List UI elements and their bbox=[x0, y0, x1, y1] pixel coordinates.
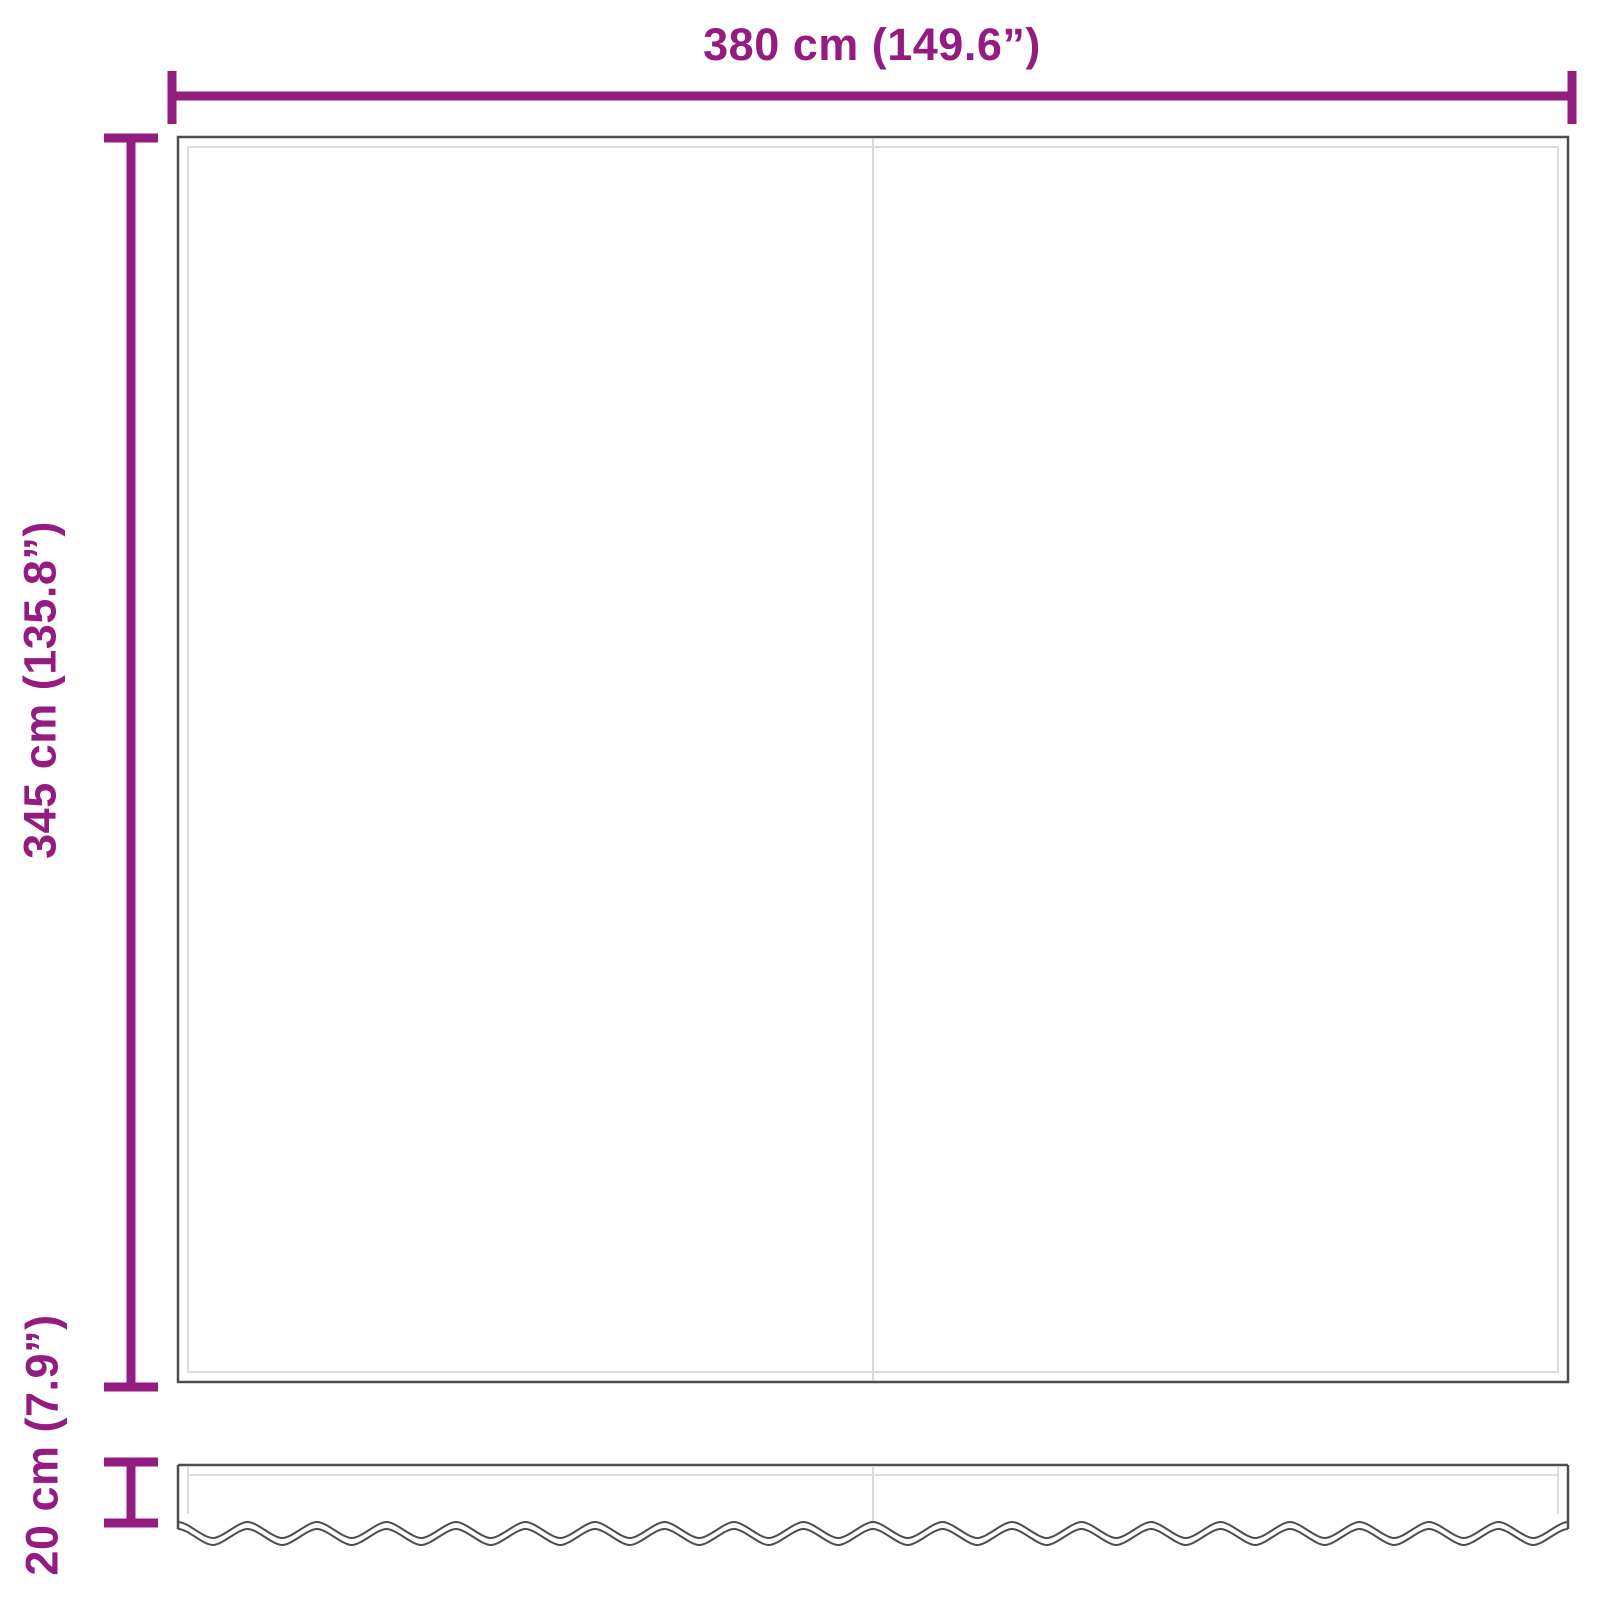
dimension-diagram: 380 cm (149.6”) 345 cm (135.8”) 20 cm (7… bbox=[0, 0, 1600, 1600]
height-dimension-label: 345 cm (135.8”) bbox=[18, 521, 63, 859]
diagram-canvas bbox=[0, 0, 1600, 1600]
valance-dimension-label: 20 cm (7.9”) bbox=[20, 1314, 65, 1575]
width-dimension bbox=[172, 71, 1572, 124]
height-dimension bbox=[104, 137, 158, 1388]
width-dimension-label: 380 cm (149.6”) bbox=[703, 22, 1041, 67]
valance-strip bbox=[178, 1465, 1568, 1545]
valance-dimension bbox=[104, 1462, 158, 1523]
fabric-panel bbox=[178, 137, 1568, 1382]
valance-scallop-edge-inner bbox=[178, 1529, 1568, 1545]
